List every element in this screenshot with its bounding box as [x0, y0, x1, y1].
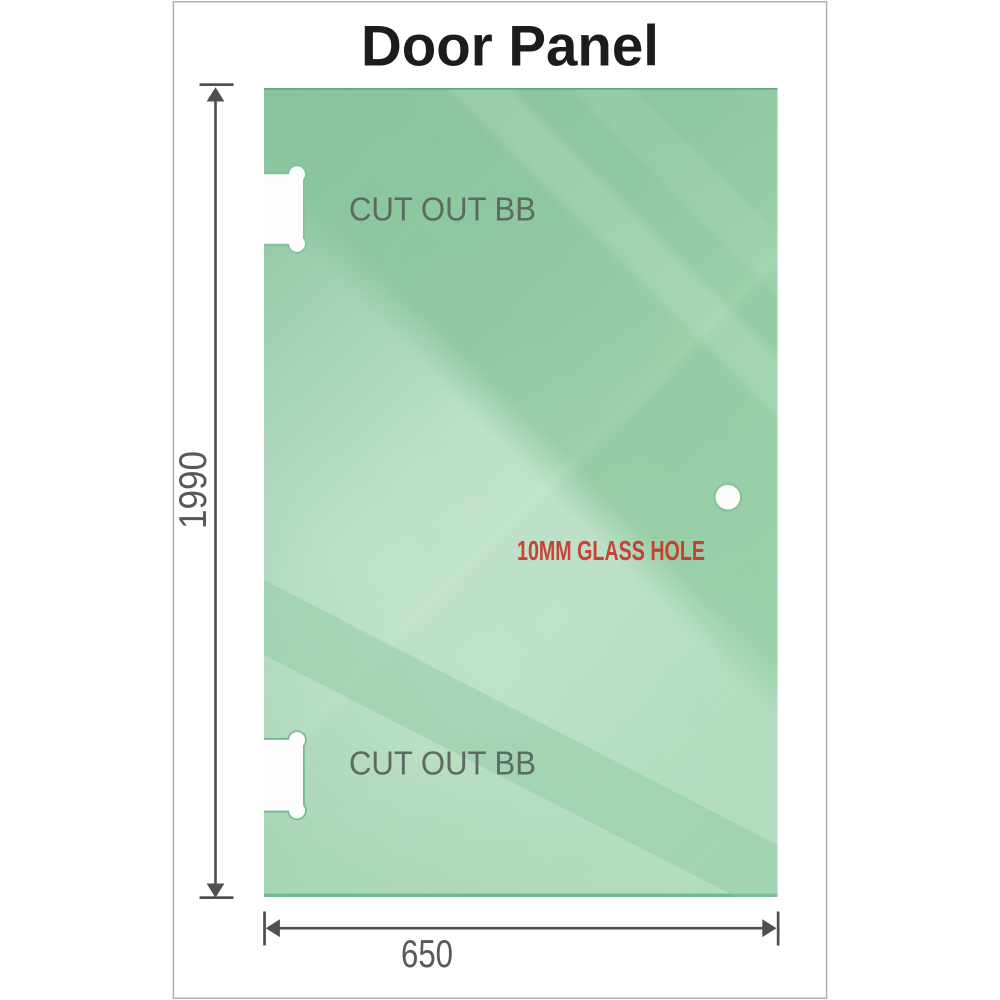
svg-text:CUT OUT BB: CUT OUT BB [349, 190, 536, 227]
svg-text:650: 650 [401, 933, 453, 976]
svg-text:CUT OUT BB: CUT OUT BB [349, 744, 536, 781]
svg-text:1990: 1990 [172, 451, 215, 529]
svg-text:Door Panel: Door Panel [361, 15, 659, 79]
svg-text:10MM GLASS HOLE: 10MM GLASS HOLE [517, 535, 705, 566]
